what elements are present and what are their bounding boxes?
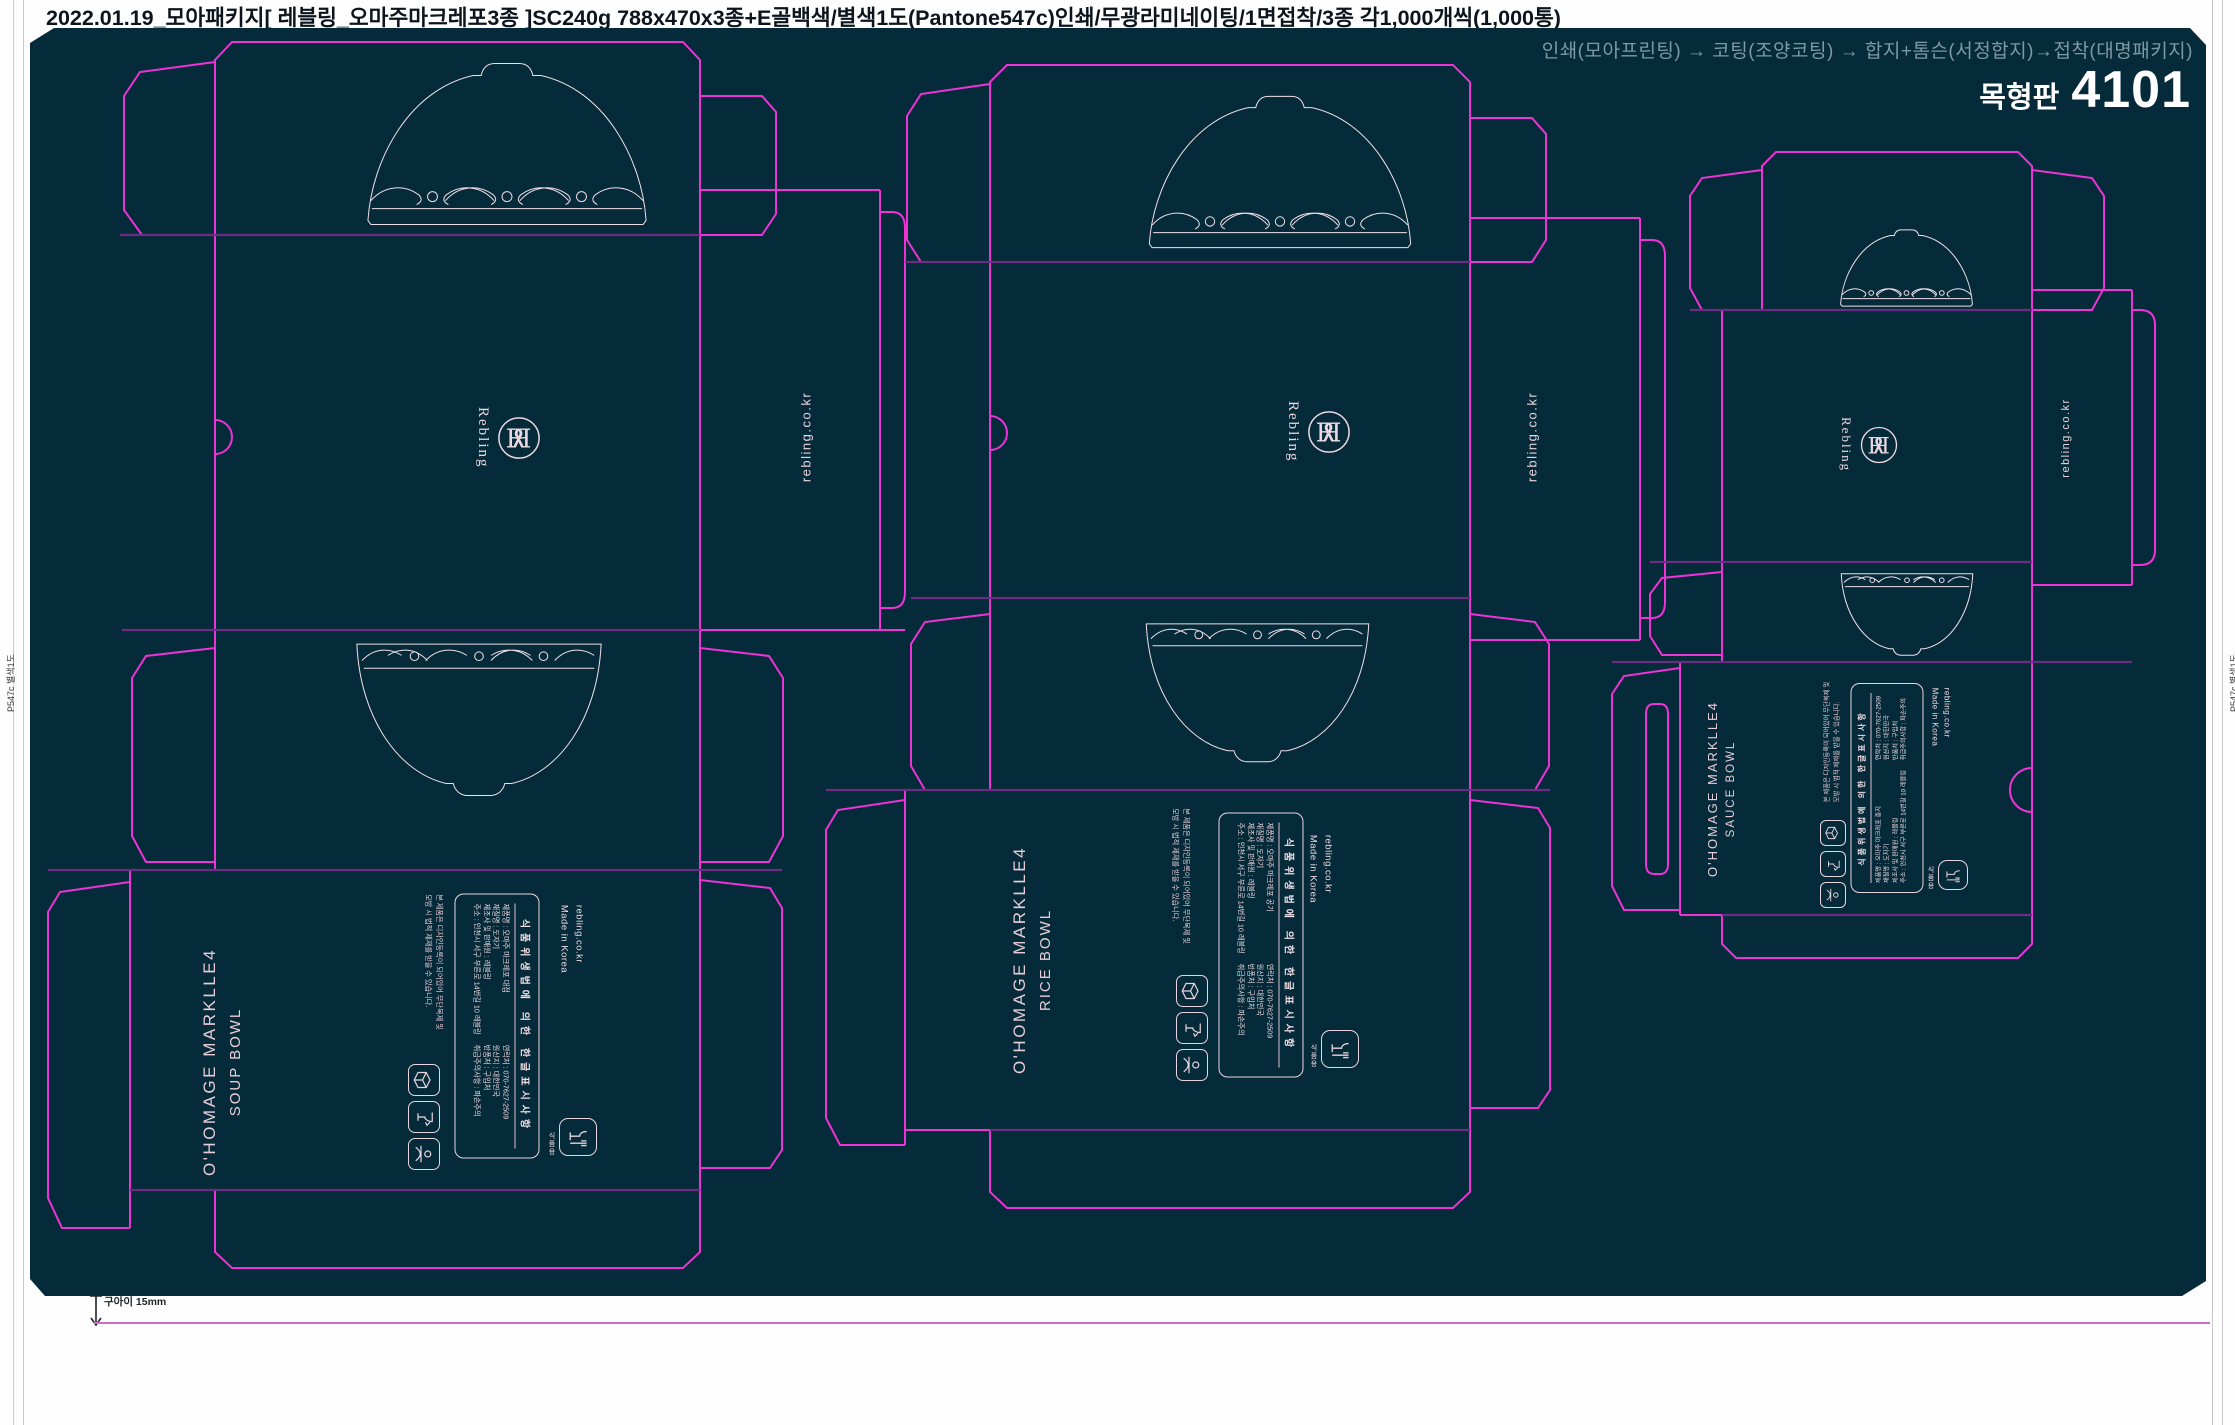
caution-line: 모방 시 법적 제재를 받을 수 있습니다. — [422, 894, 433, 1030]
food-grade-mark-rice: 식품용 — [1308, 1030, 1359, 1068]
label-row: 원산지 : 대한민국 — [1884, 693, 1892, 760]
label-rows-left: 제품명 : 오마주 마크레포 종지 재질명 : 도자기 제조사 및 판매원 : … — [1876, 770, 1919, 883]
label-rows-right: 연락처 : 070-7627-2509 원산지 : 대한민국 반품처 : 구입처… — [460, 1045, 511, 1149]
product-type: SOUP BOWL — [227, 948, 244, 1176]
origin-line: Made in Korea — [1928, 688, 1940, 747]
label-row: 취급주의사항 : 파손주의 — [1236, 964, 1246, 1068]
spot-color-mark-left: P547c 별색1도 — [4, 654, 17, 712]
label-row: 반품처 : 구입처 — [1246, 964, 1256, 1068]
label-row: 반품처 : 구입처 — [482, 1045, 492, 1149]
food-safe-icon — [1321, 1030, 1359, 1068]
print-sheet-board — [30, 28, 2206, 1296]
rebling-monogram-icon — [496, 415, 542, 461]
glass-recycle-icon — [1176, 1012, 1208, 1044]
label-row: 재질명 : 도자기 — [1884, 770, 1892, 883]
food-label-table-rice: 식품위생법에 의한 한글표시사항 제품명 : 오마주 마크레포 공기 재질명 :… — [1219, 813, 1304, 1078]
bottom-dimension-note: 구아이 15mm — [104, 1294, 166, 1309]
hand-care-icon — [408, 1138, 440, 1170]
product-series: O'HOMAGE MARKLLE4 — [1010, 846, 1030, 1074]
label-rows-left: 제품명 : 오마주 마크레포 대접 재질명 : 도자기 제조사 및 판매원 : … — [460, 904, 511, 1035]
label-row: 원산지 : 대한민국 — [1255, 964, 1265, 1068]
origin-line: Made in Korea — [556, 905, 571, 973]
label-row: 제조사 및 판매원 : 레블링 — [482, 904, 492, 1035]
brand-wordmark: Rebling — [1284, 401, 1301, 463]
label-rows-left: 제품명 : 오마주 마크레포 공기 재질명 : 도자기 제조사 및 판매원 : … — [1224, 823, 1275, 954]
product-type: RICE BOWL — [1037, 846, 1054, 1074]
label-row: 제조사 및 판매원 : 레블링 — [1246, 823, 1256, 954]
registration-line — [23, 0, 24, 1425]
product-series: O'HOMAGE MARKLLE4 — [1705, 701, 1720, 877]
carton-recycle-icon — [1176, 975, 1208, 1007]
label-row: 연락처 : 070-7627-2509 — [501, 1045, 511, 1149]
carton-recycle-icon — [1820, 820, 1846, 846]
caution-line: 모방 시 법적 제재를 받을 수 있습니다. — [1832, 682, 1842, 803]
origin-line: Made in Korea — [1305, 835, 1320, 903]
food-label-table-soup: 식품위생법에 의한 한글표시사항 제품명 : 오마주 마크레포 대접 재질명 :… — [455, 894, 540, 1159]
label-table-title: 식품위생법에 의한 한글표시사항 — [1857, 693, 1872, 883]
product-name-sauce: O'HOMAGE MARKLLE4 SAUCE BOWL — [1705, 701, 1737, 877]
caution-line: 모방 시 법적 제재를 받을 수 있습니다. — [1169, 808, 1180, 944]
website-line: rebling.co.kr — [571, 905, 586, 973]
design-caution-rice: 본 제품은 디자인등록이 되어있어 무단복제 및 모방 시 법적 제재를 받을 … — [1169, 808, 1191, 944]
design-caution-soup: 본 제품은 디자인등록이 되어있어 무단복제 및 모방 시 법적 제재를 받을 … — [422, 894, 444, 1030]
dieline-proof-sheet: 2022.01.19_모아패키지[ 레블링_오마주마크레포3종 ]SC240g … — [0, 0, 2235, 1425]
label-row: 제품명 : 오마주 마크레포 대접 — [501, 904, 511, 1035]
label-row: 제품명 : 오마주 마크레포 공기 — [1265, 823, 1275, 954]
website-text-rice: rebling.co.kr — [1525, 392, 1540, 482]
hand-care-icon — [1176, 1049, 1208, 1081]
label-row: 취급주의사항 : 파손주의 — [1900, 693, 1908, 760]
brand-wordmark: Rebling — [474, 407, 491, 469]
label-row: 반품처 : 구입처 — [1892, 693, 1900, 760]
food-grade-label: 식품용 — [1308, 1044, 1318, 1068]
die-plate-number: 목형판 4101 — [1979, 60, 2191, 120]
food-grade-mark-sauce: 식품용 — [1925, 860, 1968, 890]
product-name-rice: O'HOMAGE MARKLLE4 RICE BOWL — [1010, 846, 1054, 1074]
registration-line — [13, 0, 14, 1425]
hand-care-icon — [1820, 882, 1846, 908]
plate-number: 4101 — [2071, 60, 2191, 120]
food-safe-icon — [559, 1118, 597, 1156]
glass-recycle-icon — [1820, 851, 1846, 877]
origin-text-soup: rebling.co.kr Made in Korea — [556, 905, 585, 973]
food-grade-mark-soup: 식품용 — [546, 1118, 597, 1156]
website-line: rebling.co.kr — [1940, 688, 1952, 747]
brand-wordmark: Rebling — [1838, 417, 1854, 472]
rebling-monogram-icon — [1306, 409, 1352, 455]
food-grade-label: 식품용 — [1925, 866, 1935, 890]
brand-logo-sauce: Rebling — [1838, 417, 1899, 472]
production-flow-text: 인쇄(모아프린팅) → 코팅(조양코팅) → 합지+톰슨(서정합지)→접착(대명… — [1542, 36, 2193, 63]
glass-recycle-icon — [408, 1101, 440, 1133]
label-rows-right: 연락처 : 070-7627-2509 원산지 : 대한민국 반품처 : 구입처… — [1224, 964, 1275, 1068]
carton-recycle-icon — [408, 1064, 440, 1096]
label-rows-right: 연락처 : 070-7627-2509 원산지 : 대한민국 반품처 : 구입처… — [1876, 693, 1919, 760]
material-marks-sauce — [1820, 820, 1846, 908]
design-caution-sauce: 본 제품은 디자인등록이 되어있어 무단복제 및 모방 시 법적 제재를 받을 … — [1822, 682, 1841, 803]
label-row: 재질명 : 도자기 — [1255, 823, 1265, 954]
label-row: 주소 : 인천시 서구 부른로 14번길 10 레블링 — [1236, 823, 1246, 954]
material-marks-rice — [1176, 975, 1208, 1081]
label-row: 주소 : 인천시 서구 부른로 14번길 10 레블링 — [1900, 770, 1908, 883]
label-row: 재질명 : 도자기 — [491, 904, 501, 1035]
rebling-monogram-icon — [1859, 425, 1899, 465]
product-type: SAUCE BOWL — [1725, 701, 1737, 877]
website-text-soup: rebling.co.kr — [799, 392, 814, 482]
registration-line — [2222, 0, 2223, 1425]
label-table-title: 식품위생법에 의한 한글표시사항 — [1279, 823, 1298, 1068]
brand-logo-rice: Rebling — [1284, 401, 1352, 463]
origin-text-rice: rebling.co.kr Made in Korea — [1305, 835, 1334, 903]
sheet-trim-line — [94, 1322, 2210, 1324]
registration-line — [2212, 0, 2213, 1425]
food-label-table-sauce: 식품위생법에 의한 한글표시사항 제품명 : 오마주 마크레포 종지 재질명 :… — [1851, 683, 1924, 893]
brand-logo-soup: Rebling — [474, 407, 542, 469]
origin-text-sauce: rebling.co.kr Made in Korea — [1928, 688, 1953, 747]
food-grade-label: 식품용 — [546, 1132, 556, 1156]
product-name-soup: O'HOMAGE MARKLLE4 SOUP BOWL — [200, 948, 244, 1176]
job-header-title: 2022.01.19_모아패키지[ 레블링_오마주마크레포3종 ]SC240g … — [46, 1, 1561, 32]
website-line: rebling.co.kr — [1320, 835, 1335, 903]
plate-label: 목형판 — [1979, 74, 2059, 116]
website-text-sauce: rebling.co.kr — [2060, 398, 2072, 477]
spot-color-mark-right: P547c 별색1도 — [2227, 654, 2235, 712]
caution-line: 본 제품은 디자인등록이 되어있어 무단복제 및 — [1180, 808, 1191, 944]
label-row: 취급주의사항 : 파손주의 — [472, 1045, 482, 1149]
label-row: 제조사 및 판매원 : 레블링 — [1892, 770, 1900, 883]
material-marks-soup — [408, 1064, 440, 1170]
food-safe-icon — [1938, 860, 1968, 890]
label-row: 주소 : 인천시 서구 부른로 14번길 10 레블링 — [472, 904, 482, 1035]
label-table-title: 식품위생법에 의한 한글표시사항 — [515, 904, 534, 1149]
caution-line: 본 제품은 디자인등록이 되어있어 무단복제 및 — [1822, 682, 1832, 803]
product-series: O'HOMAGE MARKLLE4 — [200, 948, 220, 1176]
caution-line: 본 제품은 디자인등록이 되어있어 무단복제 및 — [433, 894, 444, 1030]
label-row: 연락처 : 070-7627-2509 — [1265, 964, 1275, 1068]
label-row: 원산지 : 대한민국 — [491, 1045, 501, 1149]
